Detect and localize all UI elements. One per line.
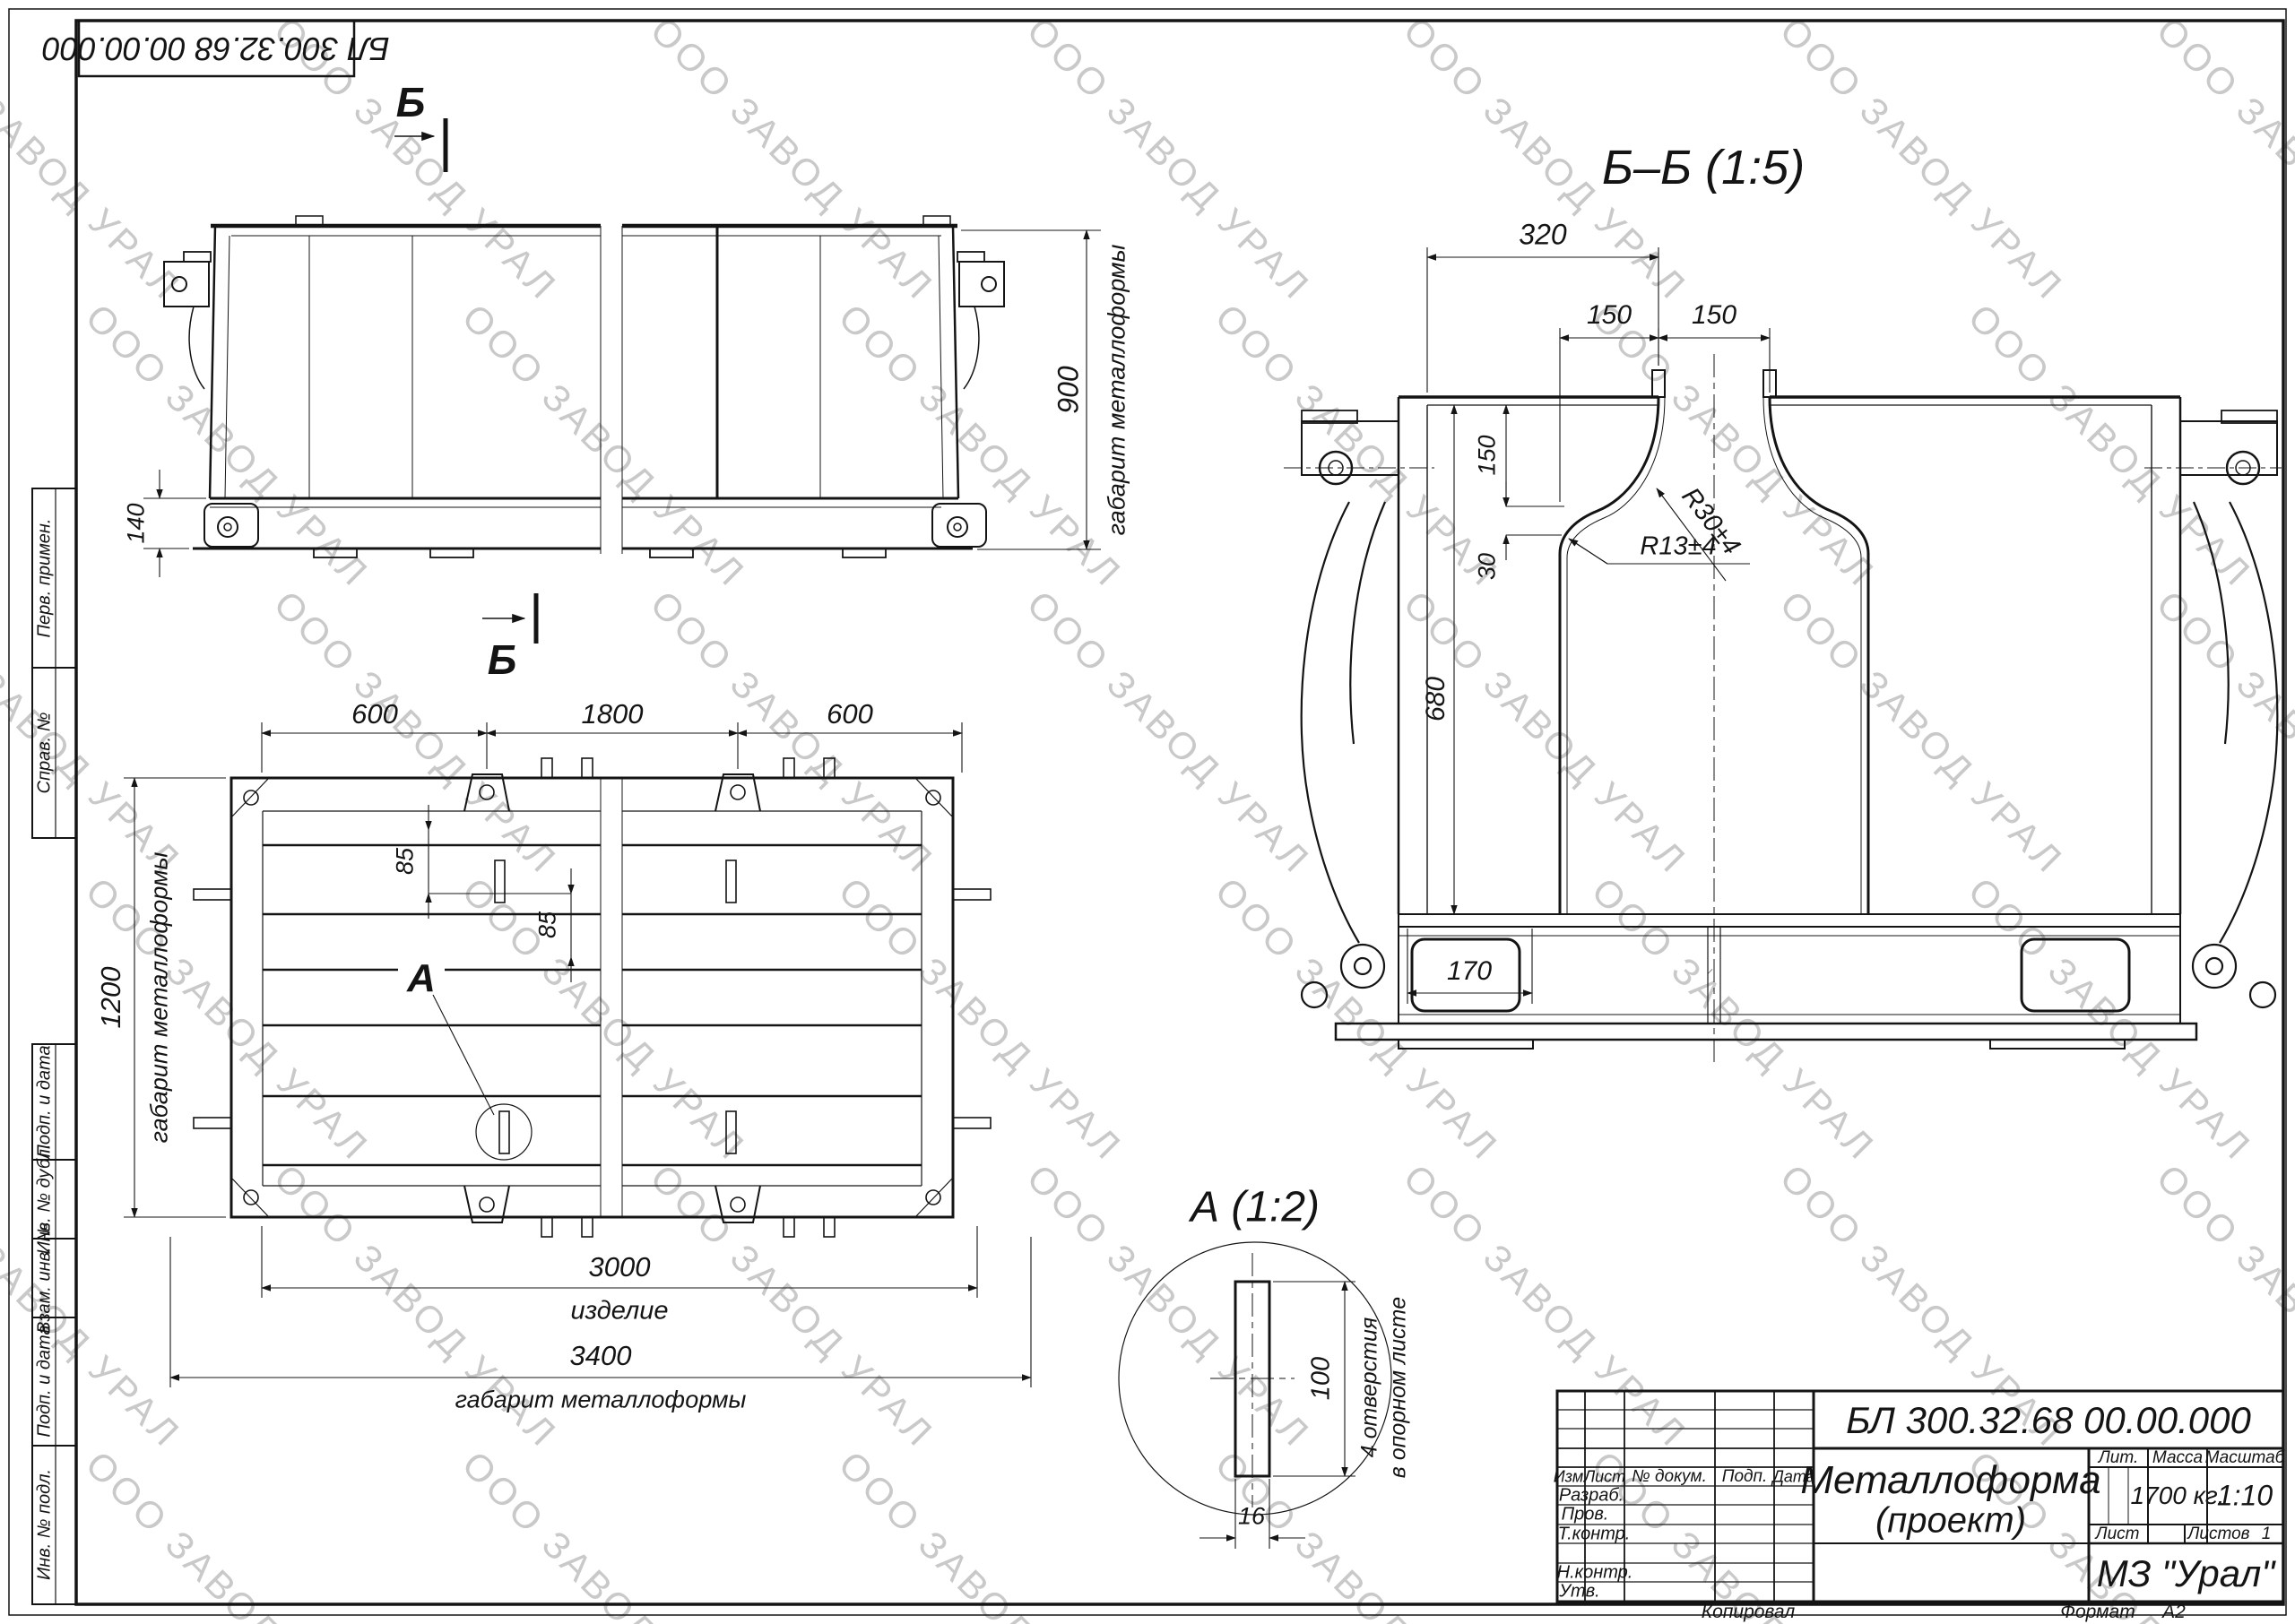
dim-150-vert-text: 150 [1474, 435, 1502, 475]
section-title: Б–Б (1:5) [1602, 140, 1805, 195]
frame-label-vzam-inv: Взам. инв. № [35, 1222, 56, 1334]
frame-label-sprav-no: Справ. № [35, 713, 56, 794]
titleblock-row-nkontr: Н.контр. [1557, 1563, 1633, 1584]
dim-150-left-text: 150 [1587, 300, 1632, 331]
dim-600-left-text: 600 [351, 698, 398, 730]
titleblock-col-podp: Подп. [1722, 1467, 1768, 1487]
titleblock-row-tkontr: Т.контр. [1558, 1525, 1631, 1545]
titleblock-doc-number: БЛ 300.32.68 00.00.000 [1846, 1399, 2251, 1442]
titleblock-row-utv: Утв. [1559, 1582, 1599, 1602]
dim-3000-text: 3000 [589, 1251, 651, 1283]
titleblock-col-list: Лист [1584, 1468, 1625, 1487]
titleblock-col-dokum: № докум. [1632, 1467, 1707, 1487]
dim-900-text: 900 [1052, 366, 1086, 413]
footer-format-value: А2 [2162, 1602, 2186, 1623]
dim-320-text: 320 [1519, 219, 1566, 252]
dim-3000-label: изделие [570, 1297, 668, 1326]
dim-1200-label: габарит металлоформы [146, 852, 174, 1144]
detail-note-line1: 4 отверстия [1357, 1317, 1383, 1457]
dim-900-label: габарит металлоформы [1104, 245, 1131, 536]
section-marker-label-top: Б [396, 78, 426, 126]
text-layer: БЛ 300.32.68 00.00.000 Перв. примен. Спр… [0, 0, 2295, 1624]
titleblock-listov-value: 1 [2262, 1525, 2272, 1544]
detail-note-line2: в опорном листе [1386, 1297, 1412, 1478]
dim-16-text: 16 [1238, 1503, 1265, 1531]
frame-label-podp-data-2: Подп. и дата [35, 1325, 56, 1437]
detail-marker-label: А [407, 956, 436, 1001]
drawing-sheet: ООО ЗАВОД УРАЛООО ЗАВОД УРАЛООО ЗАВОД УР… [0, 0, 2295, 1624]
titleblock-row-prov: Пров. [1562, 1505, 1609, 1525]
frame-label-podp-data-1: Подп. и дата [35, 1045, 56, 1157]
section-marker-label-bottom: Б [488, 635, 517, 684]
footer-format-label: Формат [2060, 1602, 2135, 1623]
titleblock-listov-label: Листов [2187, 1525, 2249, 1544]
dim-85-a-text: 85 [392, 848, 420, 875]
titleblock-lit-header: Лит. [2099, 1448, 2139, 1468]
titleblock-massa-value: 1700 кг. [2131, 1481, 2225, 1510]
dim-100-text: 100 [1307, 1357, 1337, 1400]
titleblock-masshtab-header: Масштаб [2205, 1448, 2285, 1468]
stamp-doc-number: БЛ 300.32.68 00.00.000 [42, 30, 389, 67]
dim-1200-text: 1200 [95, 967, 127, 1029]
dim-30-text: 30 [1474, 553, 1502, 580]
titleblock-massa-header: Масса [2152, 1448, 2203, 1468]
titleblock-company: МЗ "Урал" [2097, 1552, 2275, 1595]
frame-label-perv-primen: Перв. примен. [35, 519, 56, 638]
dim-150-right-text: 150 [1692, 300, 1736, 331]
frame-label-inv-podl: Инв. № подл. [35, 1469, 56, 1580]
detail-title: А (1:2) [1191, 1183, 1320, 1232]
dim-3400-text: 3400 [570, 1340, 632, 1372]
footer-kopiroval: Копировал [1702, 1602, 1795, 1623]
dim-600-right-text: 600 [827, 698, 873, 730]
dim-1800-text: 1800 [582, 698, 644, 730]
dim-85-b-text: 85 [534, 911, 562, 938]
dim-170-text: 170 [1447, 956, 1492, 987]
titleblock-masshtab-value: 1:10 [2217, 1480, 2273, 1513]
dim-140-text: 140 [123, 503, 151, 543]
titleblock-col-izm: Изм. [1554, 1468, 1588, 1487]
titleblock-col-data: Дата [1772, 1468, 1815, 1487]
titleblock-name-line2: (проект) [1875, 1501, 2026, 1542]
titleblock-name-line1: Металлоформа [1800, 1458, 2100, 1503]
dim-680-text: 680 [1421, 677, 1451, 721]
dim-3400-label: габарит металлоформы [455, 1386, 747, 1414]
titleblock-row-razrab: Разраб. [1559, 1486, 1624, 1507]
titleblock-list-label: Лист [2096, 1525, 2140, 1544]
